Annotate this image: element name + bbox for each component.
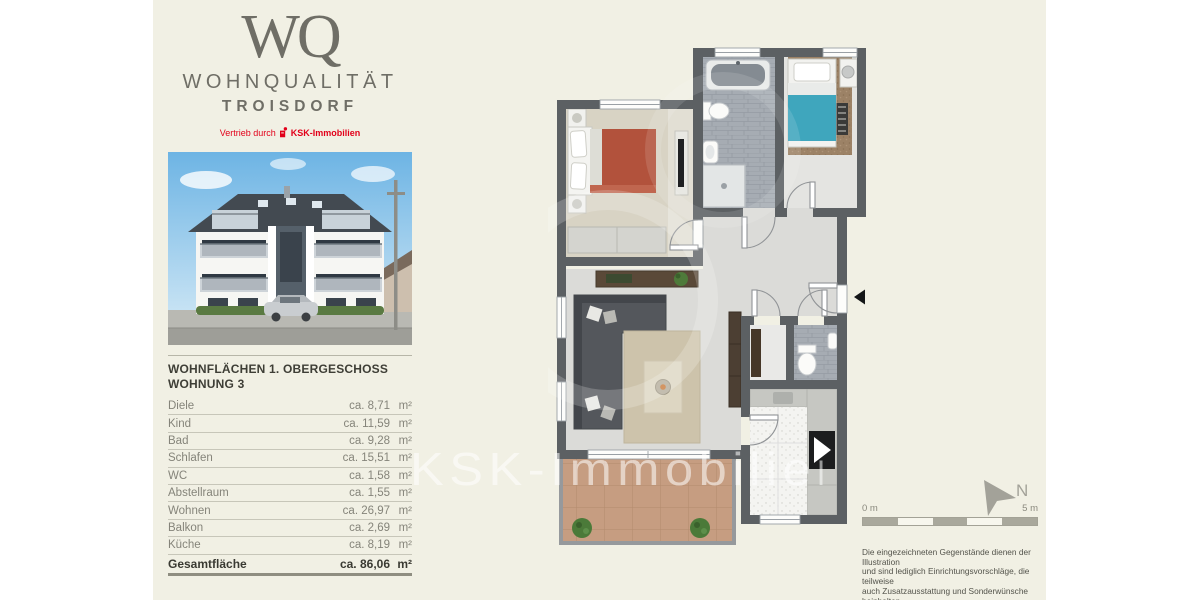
photo-pole <box>394 180 398 330</box>
toilet <box>703 102 729 120</box>
watermark-text: KSK-Immobilien <box>410 442 823 496</box>
brand-block: WQ WOHNQUALITÄT TROISDORF Vertrieb durch… <box>168 4 412 138</box>
brand-name: WOHNQUALITÄT <box>168 71 412 94</box>
table-top-rule <box>168 355 412 356</box>
sink <box>703 141 718 163</box>
photo-hedge-left <box>196 306 268 315</box>
scale-bar-icon <box>862 517 1038 526</box>
sparkasse-icon <box>279 127 288 138</box>
disclaimer-line: auch Zusatzausstattung und Sonderwünsche… <box>862 587 1057 600</box>
table-title-line2: WOHNUNG 3 <box>168 377 412 392</box>
brand-city: TROISDORF <box>168 98 412 116</box>
table-row: Wohnen ca. 26,97 m² <box>168 502 412 519</box>
entrance-door-sill <box>837 285 847 313</box>
table-row: Balkon ca. 2,69 m² <box>168 520 412 537</box>
table-row: Küche ca. 8,19 m² <box>168 537 412 554</box>
toilet <box>798 353 816 375</box>
brand-monogram: WQ <box>168 4 412 70</box>
scale-labels: 0 m 5 m <box>862 503 1038 514</box>
table-row: Bad ca. 9,28 m² <box>168 433 412 450</box>
brochure-page: WQ WOHNQUALITÄT TROISDORF Vertrieb durch… <box>0 0 1200 600</box>
distributor-name: KSK-Immobilien <box>291 128 361 138</box>
photo-street <box>168 328 412 345</box>
distributor-line: Vertrieb durch KSK-Immobilien <box>168 127 412 138</box>
distributor-prefix: Vertrieb durch <box>220 128 276 138</box>
building-photo <box>168 152 412 345</box>
photo-hedge-right <box>314 306 384 315</box>
north-label: N <box>1016 481 1028 501</box>
sink <box>828 333 837 349</box>
kitchen-sink <box>773 392 793 404</box>
double-bed <box>568 127 656 195</box>
shower <box>703 165 745 207</box>
scale-end: 5 m <box>1022 503 1038 514</box>
disclaimer-line: und sind lediglich Einrichtungsvorschläg… <box>862 567 1057 586</box>
entry-arrow-icon <box>854 290 865 305</box>
table-row: Schlafen ca. 15,51 m² <box>168 450 412 467</box>
table-row: WC ca. 1,58 m² <box>168 468 412 485</box>
plant <box>674 272 688 286</box>
table-row: Abstellraum ca. 1,55 m² <box>168 485 412 502</box>
table-row: Kind ca. 11,59 m² <box>168 415 412 432</box>
hall-wardrobe <box>729 312 741 407</box>
table-total-row: Gesamtfläche ca. 86,06 m² <box>168 555 412 576</box>
disclaimer: Die eingezeichneten Gegenstände dienen d… <box>862 548 1057 600</box>
disclaimer-line: Die eingezeichneten Gegenstände dienen d… <box>862 548 1057 567</box>
table-title-line1: WOHNFLÄCHEN 1. OBERGESCHOSS <box>168 362 412 377</box>
area-table: WOHNFLÄCHEN 1. OBERGESCHOSS WOHNUNG 3 Di… <box>168 355 412 576</box>
table-row: Diele ca. 8,71 m² <box>168 398 412 415</box>
storage-shelf <box>751 329 761 377</box>
scale-start: 0 m <box>862 503 878 514</box>
tv <box>678 139 684 187</box>
desk <box>840 59 857 87</box>
